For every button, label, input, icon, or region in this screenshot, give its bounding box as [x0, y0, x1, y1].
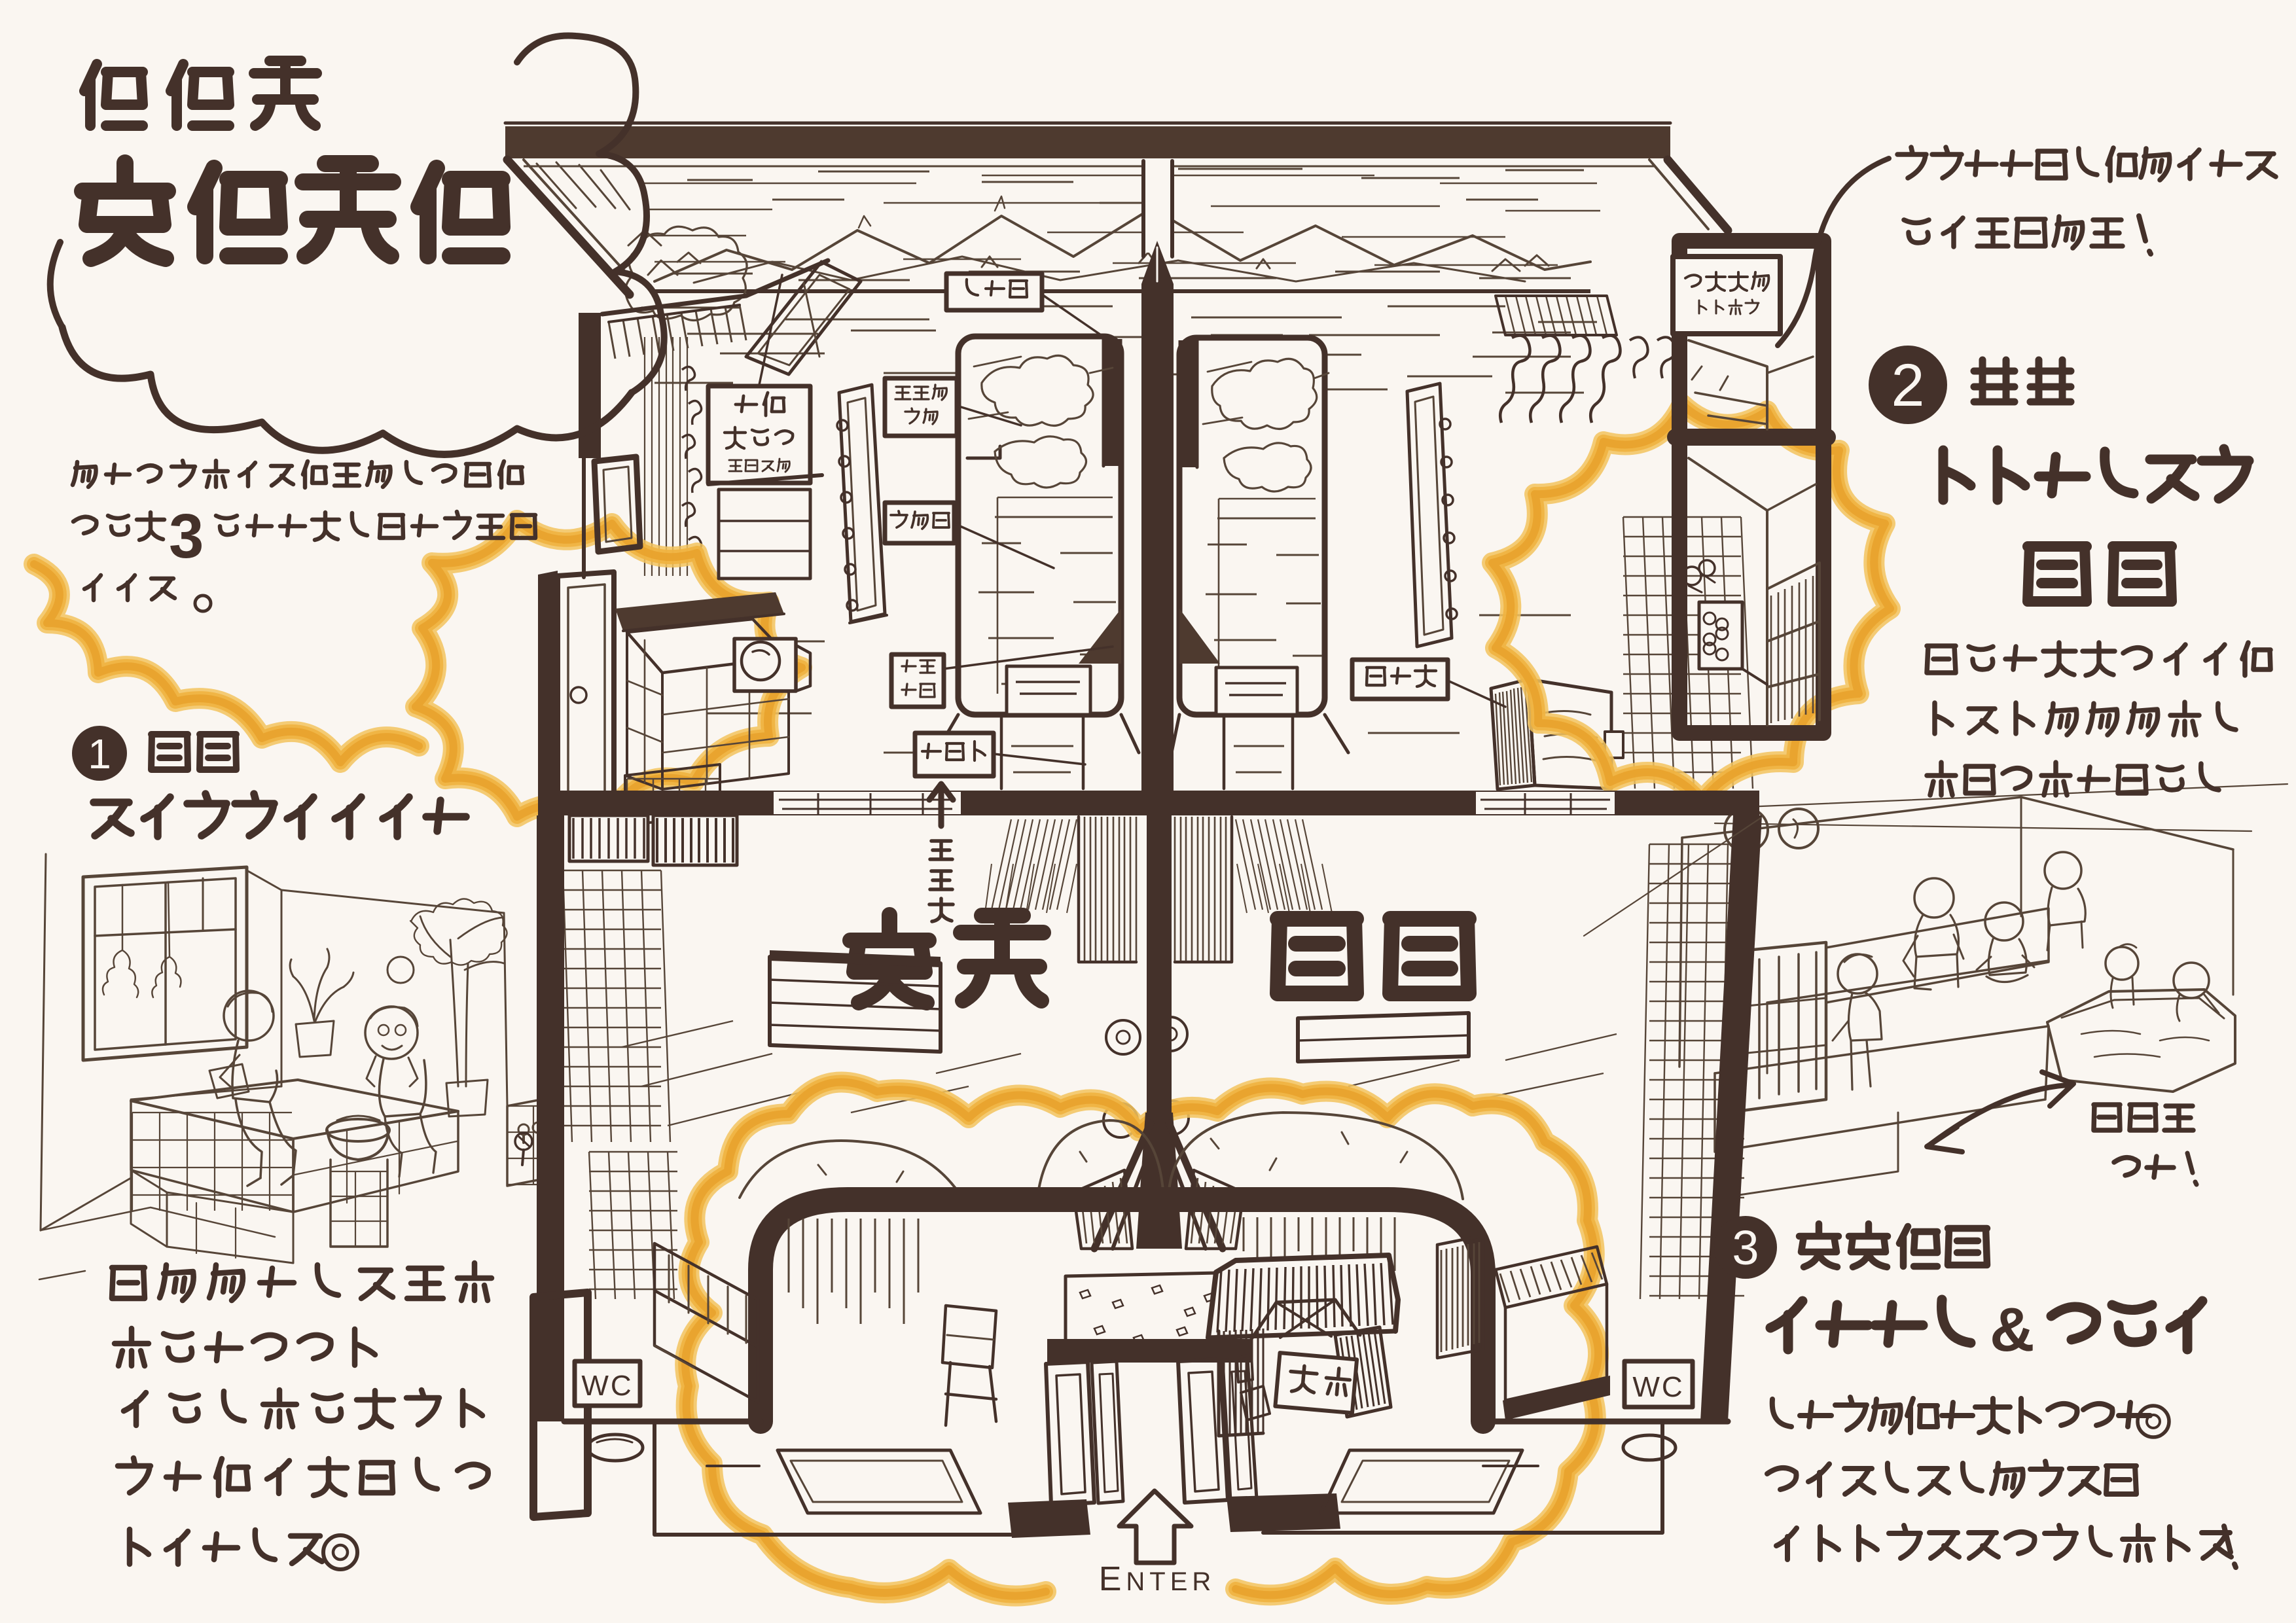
svg-text:WC: WC	[1632, 1371, 1684, 1403]
svg-text:WC: WC	[581, 1370, 633, 1402]
svg-text:1: 1	[88, 730, 111, 777]
svg-text:&: &	[1990, 1295, 2035, 1364]
svg-text:3: 3	[1732, 1221, 1759, 1275]
svg-text:3: 3	[169, 501, 204, 571]
svg-text:2: 2	[1891, 352, 1924, 419]
